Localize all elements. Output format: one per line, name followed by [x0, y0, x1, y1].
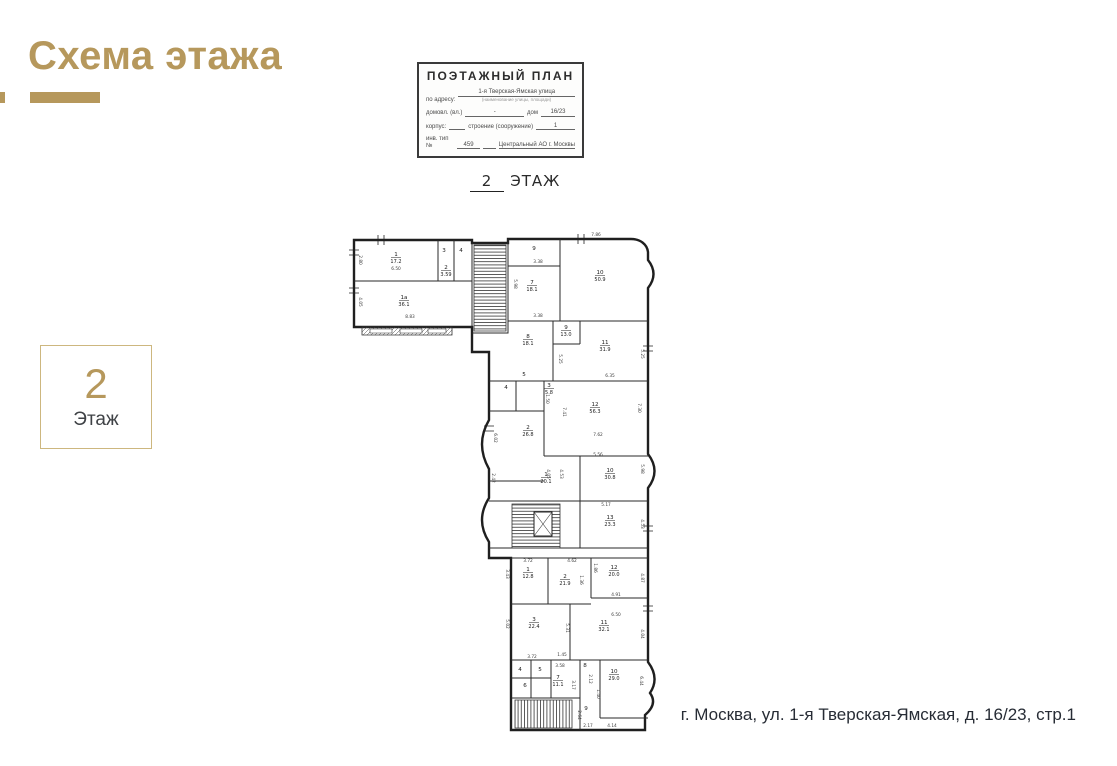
floor-selector-badge[interactable]: 2 Этаж: [40, 345, 152, 449]
dimension-label: 4.53: [558, 469, 564, 479]
room-number: 2: [563, 574, 567, 580]
stamp-row-house: домовл. (вл.) - дом 16/23: [426, 109, 575, 117]
dimension-label: 4.62: [567, 558, 577, 564]
dimension-label: 3.43: [504, 569, 510, 579]
room-number: 3: [532, 617, 536, 623]
dimension-label: 5.25: [639, 349, 645, 359]
title-underline-bar: [30, 92, 100, 103]
stairwell-top: [474, 245, 506, 331]
dimension-label: 7.41: [561, 407, 567, 417]
room-number: 12: [610, 565, 617, 571]
dimension-label: 5.17: [601, 502, 611, 508]
room-number: 7: [556, 675, 560, 681]
room-number: 2: [444, 265, 448, 271]
room-number: 5: [538, 667, 542, 673]
room-number: 2: [526, 425, 530, 431]
stamp-title: ПОЭТАЖНЫЙ ПЛАН: [426, 69, 575, 83]
stamp-inv-value: 459: [457, 142, 479, 150]
room-area: 26.8: [522, 432, 533, 438]
stamp-address-value: 1-я Тверская-Ямская улица: [458, 89, 575, 97]
floor-plan-drawing: 117.23423.591а36.19718.11050.9818.1913.0…: [348, 226, 668, 738]
dimension-label: 3.72: [523, 558, 533, 564]
room-number: 10: [610, 669, 618, 675]
room-area: 11.1: [552, 682, 563, 688]
room-area: 3.59: [440, 272, 451, 278]
dimension-label: 3.38: [533, 259, 543, 265]
room-area: 23.3: [604, 522, 615, 528]
room-number: 10: [606, 468, 614, 474]
stamp-house-label: домовл. (вл.): [426, 110, 462, 117]
dimension-label: 4.04: [639, 629, 645, 639]
dimension-label: 6.50: [391, 266, 401, 272]
room-area: 20.1: [540, 479, 551, 485]
room-number: 9: [564, 325, 568, 331]
room-area: 13.0: [560, 332, 571, 338]
stamp-row-building: корпус: строение (сооружение) 1: [426, 123, 575, 131]
dimension-label: 1.40: [595, 689, 601, 699]
dimension-label: 3.38: [533, 313, 543, 319]
dimension-label: 4.53: [639, 519, 645, 529]
room-number: 6: [523, 683, 527, 689]
dimension-label: 1.86: [592, 563, 598, 573]
room-number: 11: [600, 620, 608, 626]
room-number: 1: [526, 567, 530, 573]
room-area: 32.1: [598, 627, 609, 633]
dimension-label: 7.30: [636, 403, 642, 413]
balcony-strip: [362, 327, 452, 335]
room-number: 4: [504, 385, 508, 391]
room-number: 12: [591, 402, 598, 408]
dimension-label: 3.17: [570, 680, 576, 690]
page: Схема этажа 2 Этаж ПОЭТАЖНЫЙ ПЛАН по адр…: [0, 0, 1117, 766]
room-area: 17.2: [390, 259, 401, 265]
dimension-label: 3.72: [527, 654, 537, 660]
stamp-row-address: по адресу: 1-я Тверская-Ямская улица (на…: [426, 89, 575, 103]
room-area: 30.8: [604, 475, 615, 481]
dimension-label: 7.86: [591, 232, 601, 238]
floor-badge-number: 2: [84, 363, 107, 405]
dimension-label: 6.50: [611, 612, 621, 618]
room-number: 9: [532, 246, 536, 252]
room-number: 1а: [401, 295, 408, 301]
room-number: 1: [394, 252, 398, 258]
decor-edge-fragment: [0, 92, 5, 103]
room-number: 4: [459, 248, 463, 254]
room-number: 5: [522, 372, 526, 378]
room-area: 22.4: [528, 624, 539, 630]
room-number: 3: [547, 383, 551, 389]
dimension-label: 2.42: [490, 473, 496, 483]
room-area: 12.8: [522, 574, 533, 580]
room-number: 4: [518, 667, 522, 673]
stamp-house-value: 16/23: [541, 109, 575, 117]
stamp-building-blank: [449, 129, 465, 130]
dimension-label: 5.98: [512, 279, 518, 289]
plan-heading-number: 2: [470, 172, 505, 192]
dimension-label: 5.98: [639, 464, 645, 474]
dimension-label: 4.87: [639, 573, 645, 583]
room-area: 18.1: [526, 287, 537, 293]
page-title: Схема этажа: [28, 34, 282, 79]
stamp-address-caption: (наименование улицы, площади): [482, 98, 551, 103]
bti-stamp-box: ПОЭТАЖНЫЙ ПЛАН по адресу: 1-я Тверская-Я…: [417, 62, 584, 158]
stamp-row-inventory: инв. тип № 459 Центральный АО г. Москвы: [426, 136, 575, 149]
dimension-label: 5.25: [557, 354, 563, 364]
floor-badge-label: Этаж: [73, 409, 118, 431]
dimension-label: 8.83: [405, 314, 415, 320]
room-area: 21.9: [559, 581, 570, 587]
stamp-inv-district: Центральный АО г. Москвы: [499, 142, 575, 150]
room-area: 50.9: [594, 277, 605, 283]
stamp-house-blank: -: [465, 109, 524, 117]
room-area: 31.9: [599, 347, 610, 353]
room-area: 29.0: [608, 676, 619, 682]
dimension-label: 1.36: [578, 575, 584, 585]
room-number: 11: [601, 340, 609, 346]
dimension-label: 6.02: [492, 433, 498, 443]
dimension-label: 1.50: [544, 394, 550, 404]
stamp-house-label2: дом: [527, 110, 538, 117]
stamp-inv-label: инв. тип №: [426, 136, 454, 149]
room-area: 18.1: [522, 341, 533, 347]
room-number: 3: [442, 248, 446, 254]
dimension-label: 5.56: [593, 452, 603, 458]
stamp-building-label: корпус:: [426, 124, 446, 131]
stamp-inv-blank: [483, 148, 496, 149]
dimension-label: 4.91: [611, 592, 621, 598]
dimension-label: 4.05: [545, 469, 551, 479]
room-number: 8: [526, 334, 530, 340]
stamp-address-label: по адресу:: [426, 97, 455, 104]
dimension-label: 5.02: [504, 619, 510, 629]
dimension-label: 1.45: [557, 652, 567, 658]
room-area: 56.3: [589, 409, 600, 415]
room-number: 7: [530, 280, 534, 286]
plan-heading-word: ЭТАЖ: [510, 172, 560, 190]
dimension-label: 2.12: [587, 674, 593, 684]
room-area: 20.0: [608, 572, 619, 578]
dimension-label: 4.05: [357, 297, 363, 307]
dimension-label: 6.44: [638, 676, 644, 686]
dimension-label: 6.35: [605, 373, 615, 379]
dimension-label: 3.58: [555, 663, 565, 669]
stamp-building-label2: строение (сооружение): [468, 124, 533, 131]
stairwell-middle: [512, 504, 560, 548]
room-area: 36.1: [398, 302, 409, 308]
room-number: 8: [583, 663, 587, 669]
dimension-label: 2.80: [357, 255, 363, 265]
dimension-label: 7.62: [593, 432, 603, 438]
plan-heading: 2ЭТАЖ: [445, 172, 585, 190]
property-address: г. Москва, ул. 1-я Тверская-Ямская, д. 1…: [556, 705, 1076, 725]
room-number: 10: [596, 270, 604, 276]
stamp-building-value: 1: [536, 123, 575, 131]
dimension-label: 5.31: [564, 623, 570, 633]
room-number: 13: [606, 515, 614, 521]
